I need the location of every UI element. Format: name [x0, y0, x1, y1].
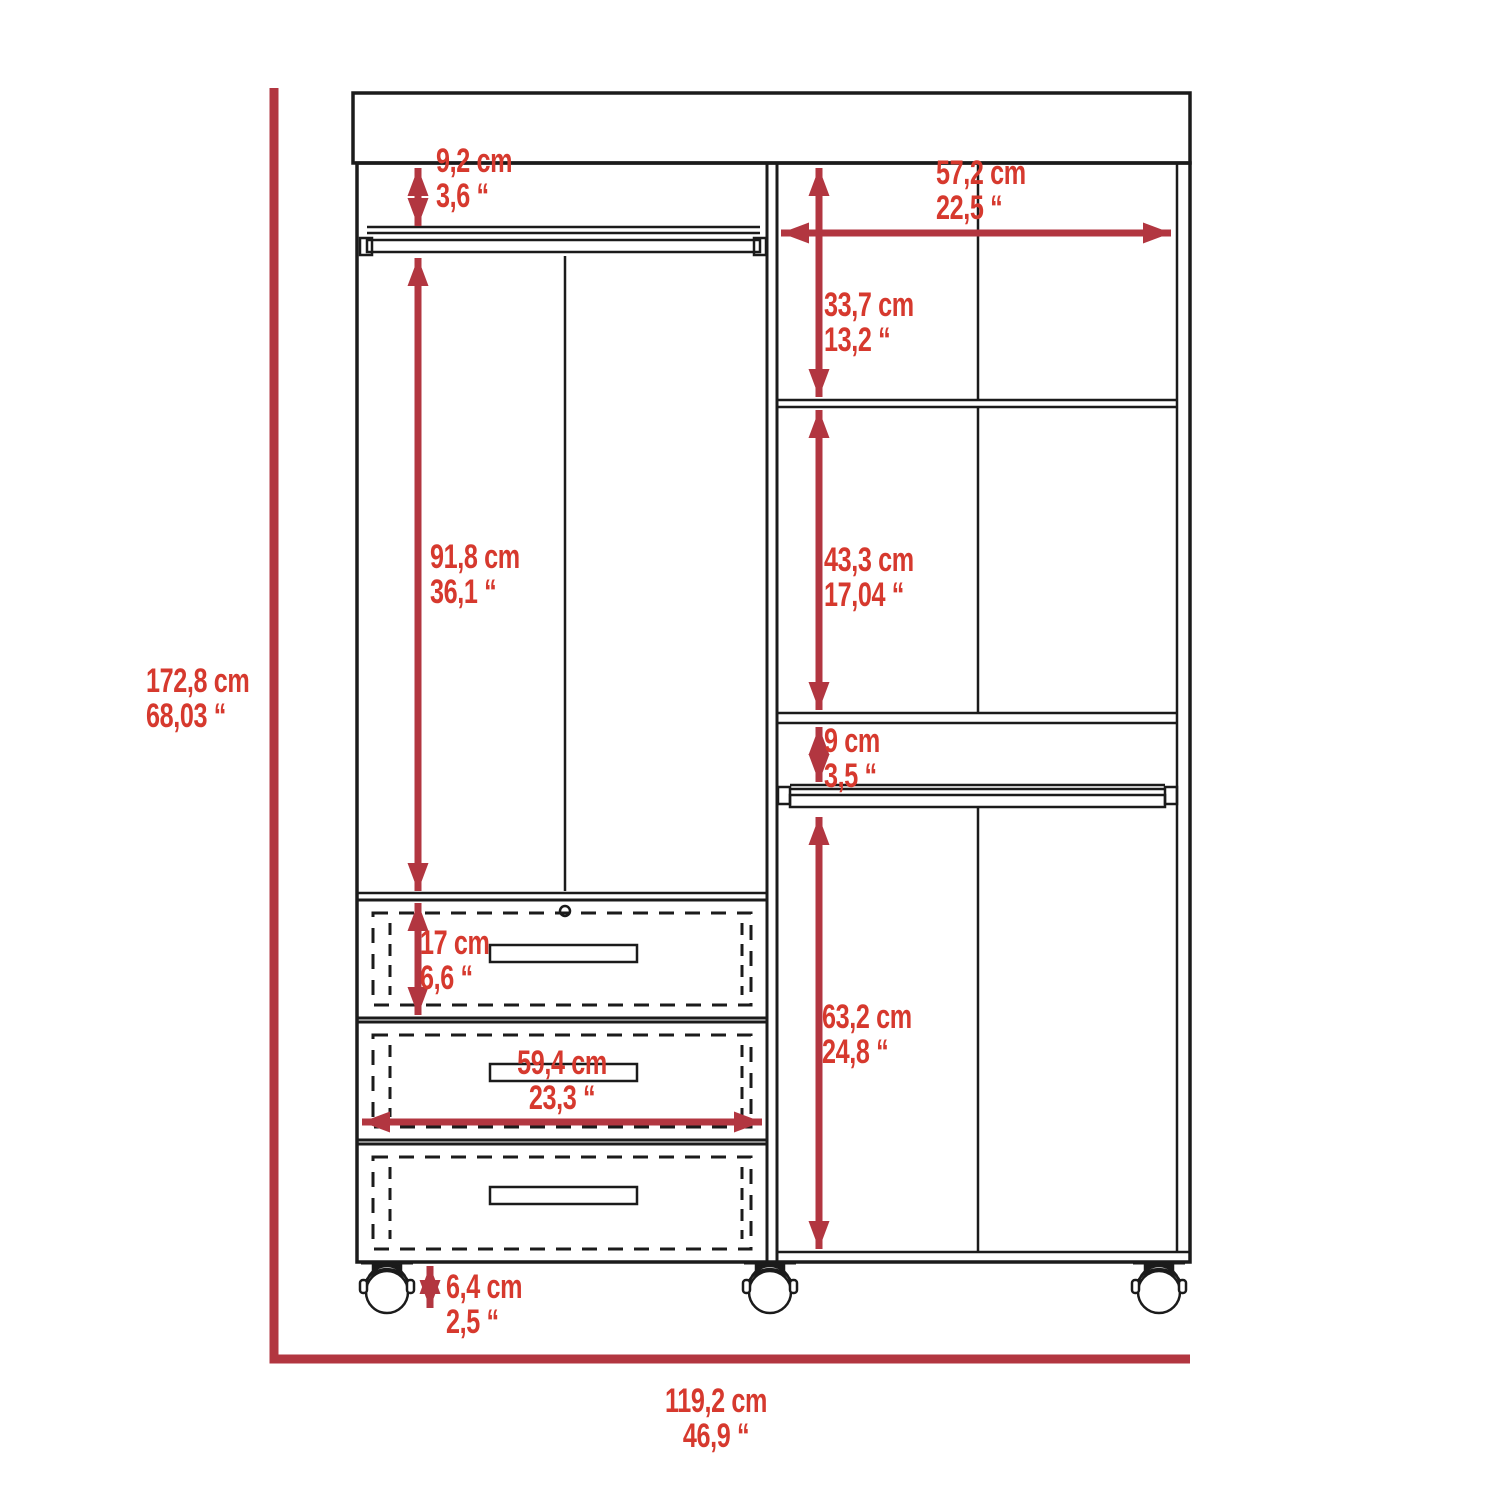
dim-drawer-width-label: 59,4 cm 23,3 “ [481, 1046, 644, 1116]
dim-value-in: 3,6 “ [436, 179, 512, 214]
dim-overall-width-label: 119,2 cm 46,9 “ [635, 1384, 798, 1454]
dim-top-gap-label: 9,2 cm 3,6 “ [436, 144, 512, 214]
dim-caster-height-label: 6,4 cm 2,5 “ [446, 1270, 522, 1340]
dim-value-cm: 172,8 cm [146, 664, 249, 699]
dim-value-cm: 59,4 cm [481, 1046, 644, 1081]
drawer-handle [490, 1187, 637, 1204]
dimension-lines [270, 88, 1191, 1364]
dim-value-in: 13,2 “ [824, 323, 914, 358]
dim-value-in: 36,1 “ [430, 575, 520, 610]
wardrobe-cabinet [353, 93, 1190, 1313]
dim-value-in: 22,5 “ [936, 191, 1026, 226]
diagram-canvas [0, 0, 1503, 1503]
dim-value-cm: 9 cm [824, 724, 880, 759]
dim-value-in: 2,5 “ [446, 1305, 522, 1340]
dim-value-cm: 63,2 cm [822, 1000, 912, 1035]
drawer-3 [357, 1144, 767, 1262]
dim-value-in: 6,6 “ [420, 961, 489, 996]
dim-value-cm: 33,7 cm [824, 288, 914, 323]
dim-drawer-height-label: 17 cm 6,6 “ [420, 926, 489, 996]
dim-middle-right-label: 43,3 cm 17,04 “ [824, 543, 914, 613]
dim-lower-right-label: 63,2 cm 24,8 “ [822, 1000, 912, 1070]
dim-value-in: 23,3 “ [481, 1081, 644, 1116]
rod-bracket-icon [778, 787, 790, 804]
dim-value-cm: 119,2 cm [635, 1384, 798, 1419]
left-hanging-rod [360, 227, 766, 255]
drawer-handle [490, 945, 637, 962]
dim-value-in: 68,03 “ [146, 699, 249, 734]
dim-value-in: 3,5 “ [824, 759, 880, 794]
dim-overall-height-label: 172,8 cm 68,03 “ [146, 664, 249, 734]
dim-value-cm: 6,4 cm [446, 1270, 522, 1305]
dim-value-in: 46,9 “ [635, 1419, 798, 1454]
dim-value-cm: 9,2 cm [436, 144, 512, 179]
caster-wheel-icon [360, 1263, 414, 1313]
dim-left-hanging-label: 91,8 cm 36,1 “ [430, 540, 520, 610]
wardrobe-dimension-diagram: 9,2 cm 3,6 “ 57,2 cm 22,5 “ 33,7 cm 13,2… [0, 0, 1503, 1503]
dim-value-cm: 57,2 cm [936, 156, 1026, 191]
dim-value-cm: 91,8 cm [430, 540, 520, 575]
dim-value-in: 24,8 “ [822, 1035, 912, 1070]
dim-value-cm: 17 cm [420, 926, 489, 961]
caster-wheel-icon [1132, 1263, 1186, 1313]
dim-upper-right-label: 33,7 cm 13,2 “ [824, 288, 914, 358]
dim-rod-gap-label: 9 cm 3,5 “ [824, 724, 880, 794]
right-shelves [777, 400, 1190, 1252]
dim-right-width-label: 57,2 cm 22,5 “ [936, 156, 1026, 226]
dim-value-in: 17,04 “ [824, 578, 914, 613]
rod-bracket-icon [1165, 787, 1177, 804]
dim-value-cm: 43,3 cm [824, 543, 914, 578]
caster-wheel-icon [743, 1263, 797, 1313]
